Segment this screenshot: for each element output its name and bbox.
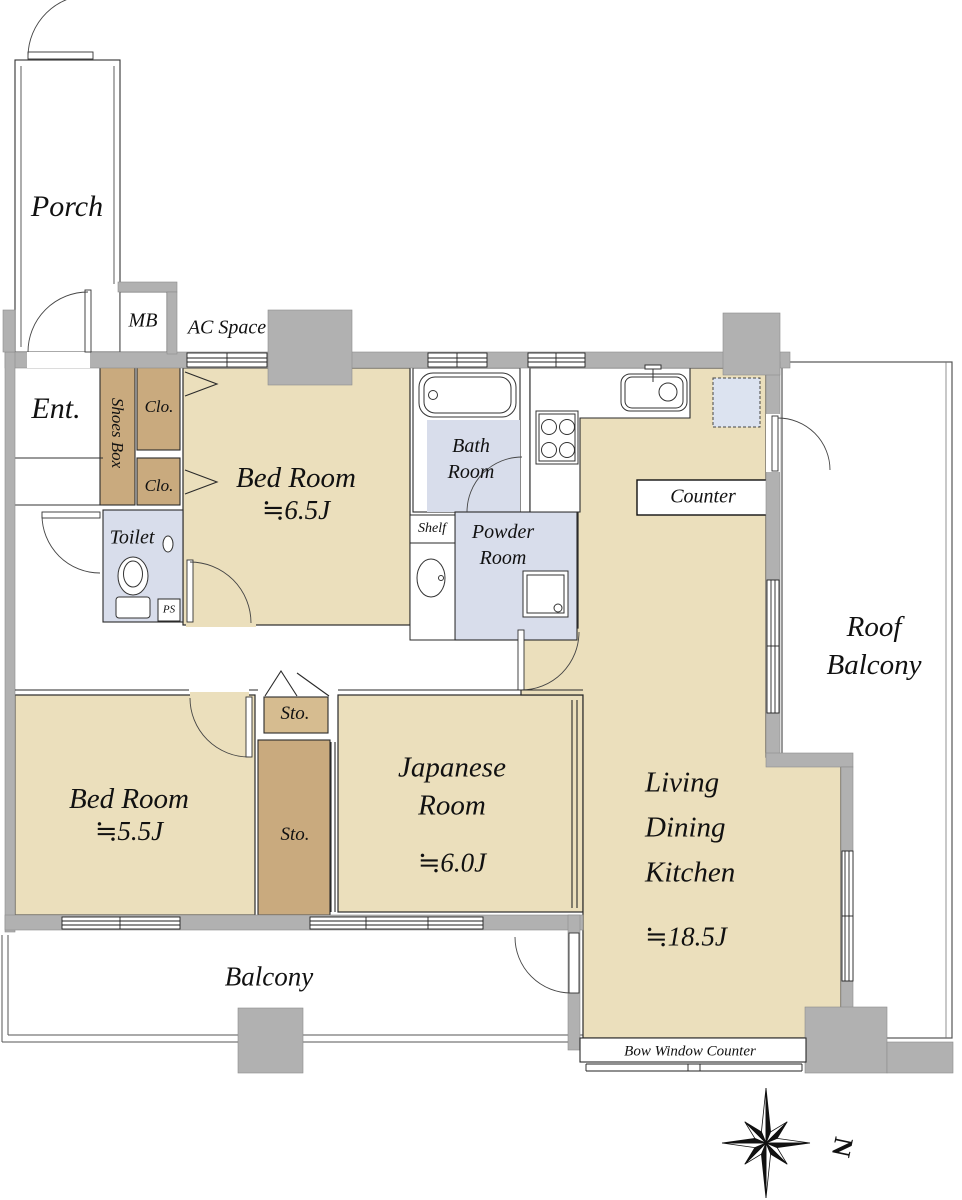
pillar-top-right	[723, 313, 780, 375]
bedroom-main-door-opening	[186, 621, 256, 627]
window-bedroom-second	[62, 917, 180, 929]
bedroom-second-label: Bed Room ≒5.5J	[69, 783, 189, 847]
entrance-step-lines	[15, 458, 103, 505]
bathroom-label: Bath Room	[448, 433, 495, 485]
porch-gate-door-arc	[28, 0, 90, 56]
pillar-ldk-corner	[805, 1007, 887, 1073]
toilet-door-leaf	[42, 512, 100, 518]
toilet-label: Toilet	[110, 527, 155, 550]
japanese-room-label: Japanese Room ≒6.0J	[398, 730, 506, 899]
balcony-door-arc	[515, 937, 571, 993]
roof-balcony-label: Roof Balcony	[826, 608, 921, 684]
living-dining-kitchen-label: Living Dining Kitchen ≒18.5J	[645, 742, 735, 977]
meter-box-wall-right	[167, 292, 177, 354]
floor-plan: Porch MB AC Space Ent. Shoes Box Clo. Cl…	[0, 0, 962, 1200]
front-door-leaf	[85, 290, 91, 352]
closet-upper-label: Clo.	[145, 397, 174, 417]
closet-lower-label: Clo.	[145, 476, 174, 496]
refrigerator-space-icon	[713, 378, 760, 427]
window-ldk-right	[767, 580, 779, 713]
wall-left-stub	[3, 310, 15, 352]
bedroom-second-door-opening	[190, 692, 249, 698]
shelf-label: Shelf	[418, 521, 446, 537]
pillar-balcony	[238, 1008, 303, 1073]
toilet-paper-holder-icon	[163, 536, 173, 552]
bow-window-counter-label: Bow Window Counter	[624, 1043, 756, 1060]
gas-stove-icon	[536, 411, 578, 464]
washbasin-icon	[417, 559, 445, 597]
meter-box-wall-top	[118, 282, 177, 292]
bedroom-main-label: Bed Room ≒6.5J	[236, 462, 356, 526]
ac-space-label: AC Space	[188, 317, 266, 340]
entrance-label: Ent.	[31, 392, 80, 427]
floor-plan-drawing	[0, 0, 962, 1200]
meter-box-label: MB	[129, 310, 158, 333]
bedroom-second-door-leaf	[246, 697, 252, 757]
roof-balcony-door-leaf	[772, 416, 778, 471]
bow-window-glass	[586, 1064, 802, 1071]
compass-rose-icon	[722, 1088, 810, 1198]
storage-small-label: Sto.	[280, 703, 309, 725]
wall-top	[5, 352, 790, 368]
storage-tall-label: Sto.	[280, 824, 309, 846]
pillar-top-left	[268, 310, 352, 385]
pipe-shaft-label: PS	[163, 604, 175, 617]
window-bathroom	[428, 353, 487, 367]
window-kitchen	[528, 353, 585, 367]
wall-bow-right	[887, 1042, 953, 1073]
washing-machine-icon	[523, 571, 568, 617]
shoes-box-label: Shoes Box	[107, 398, 127, 468]
front-door-opening	[27, 352, 90, 368]
window-japanese-room	[310, 917, 483, 929]
toilet-door-arc	[42, 515, 100, 573]
bedroom-main-door-leaf	[187, 560, 193, 622]
storage-folding-door	[265, 671, 329, 696]
bathtub-icon	[419, 373, 516, 417]
balcony-label: Balcony	[225, 961, 313, 992]
balcony-door-leaf	[569, 933, 579, 993]
counter-label: Counter	[670, 486, 736, 509]
japanese-room-sliding-door-left	[331, 742, 335, 912]
porch-label: Porch	[31, 190, 103, 225]
powder-room-label: Powder Room	[472, 519, 534, 571]
porch-gate-door-leaf	[28, 52, 93, 59]
wall-left	[5, 352, 15, 932]
wall-step	[766, 753, 853, 767]
ldk-hall-door-leaf	[518, 630, 524, 690]
